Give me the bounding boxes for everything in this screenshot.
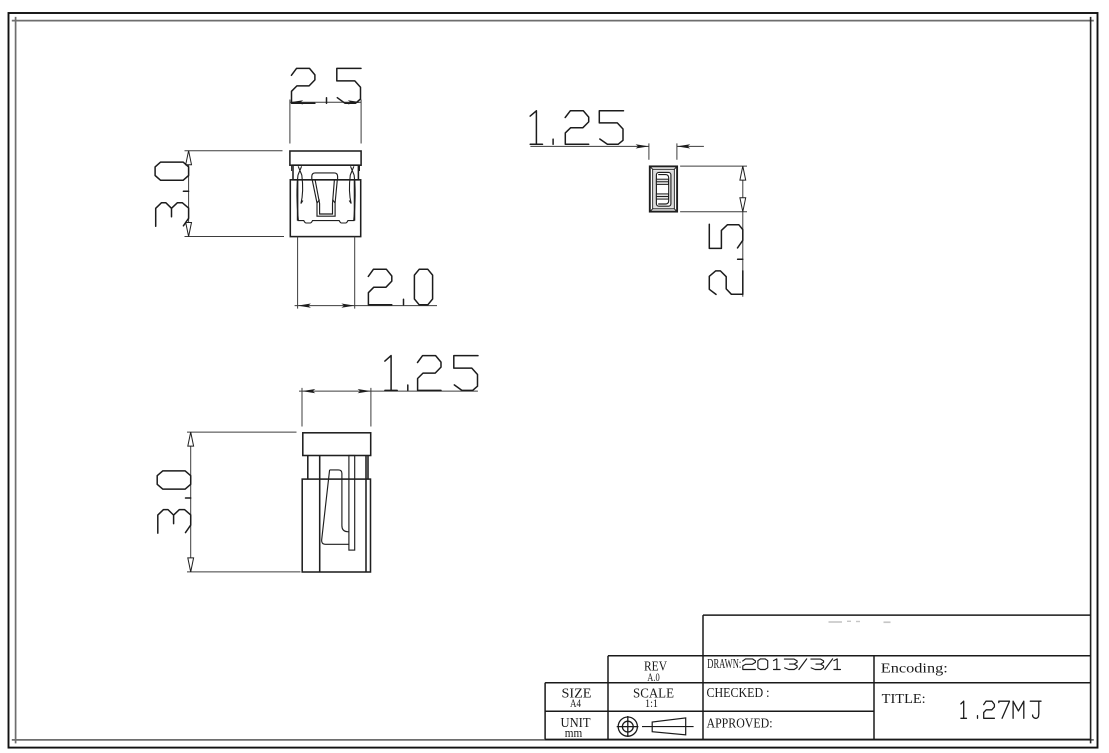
svg-text:1:1: 1:1 bbox=[645, 696, 658, 710]
svg-text:A.0: A.0 bbox=[647, 670, 660, 684]
svg-text:mm: mm bbox=[565, 725, 583, 740]
svg-text:A4: A4 bbox=[570, 696, 581, 710]
svg-text:TITLE:: TITLE: bbox=[882, 692, 926, 707]
svg-text:DRAWN:: DRAWN: bbox=[707, 657, 741, 672]
svg-text:CHECKED :: CHECKED : bbox=[707, 686, 770, 701]
svg-text:APPROVED:: APPROVED: bbox=[707, 717, 773, 732]
svg-text:Encoding:: Encoding: bbox=[881, 662, 948, 677]
